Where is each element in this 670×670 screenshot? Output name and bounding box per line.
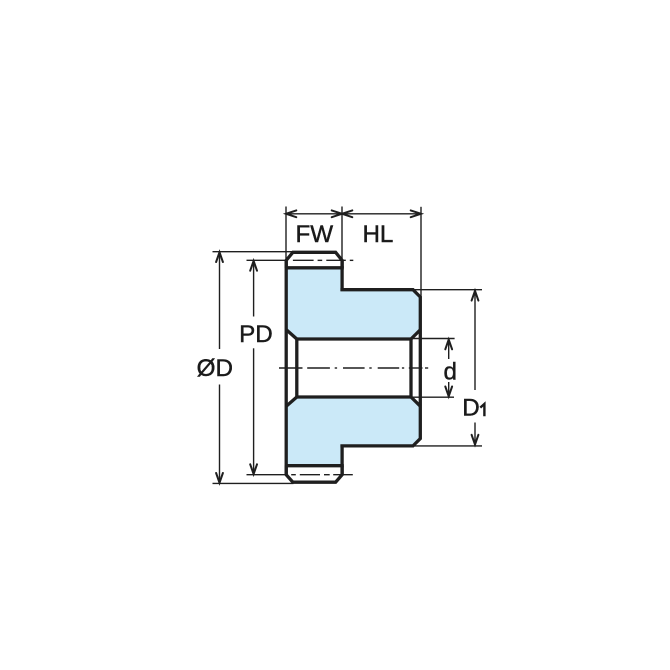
svg-text:ØD: ØD [197, 355, 233, 382]
svg-text:PD: PD [239, 321, 273, 348]
svg-text:D: D [462, 395, 479, 422]
svg-text:d: d [443, 358, 456, 385]
svg-text:FW: FW [295, 221, 333, 248]
svg-text:HL: HL [362, 221, 393, 248]
